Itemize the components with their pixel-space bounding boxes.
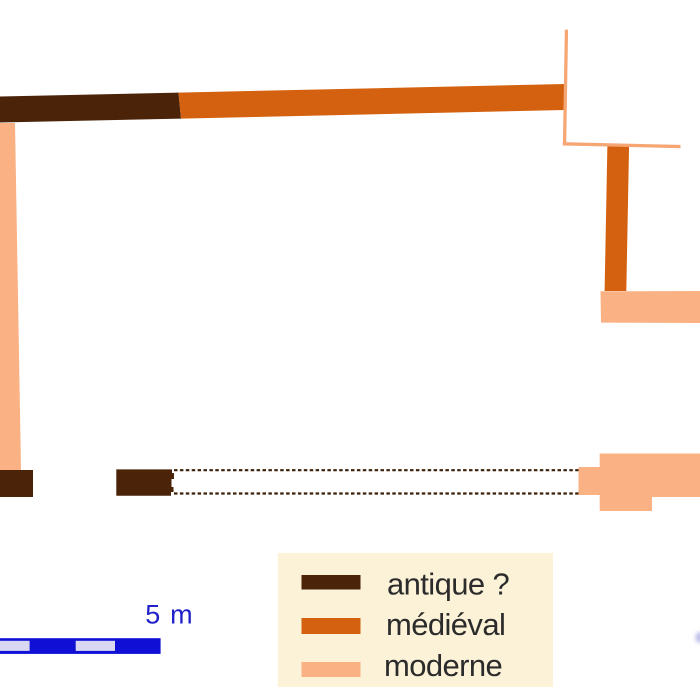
svg-text:moderne: moderne — [384, 648, 502, 683]
svg-text:antique ?: antique ? — [387, 566, 510, 601]
svg-text:médiéval: médiéval — [386, 607, 505, 642]
svg-text:5 m: 5 m — [145, 599, 194, 629]
